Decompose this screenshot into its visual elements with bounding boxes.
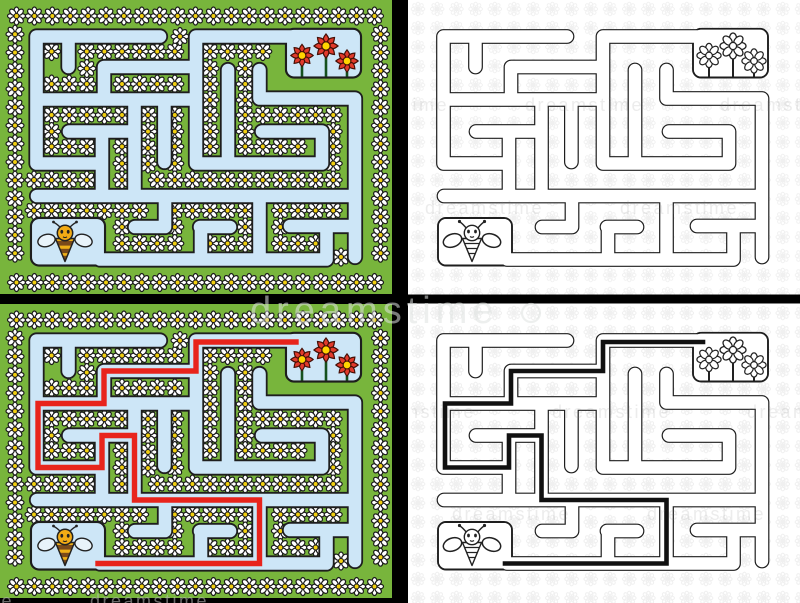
svg-text:dreamstime: dreamstime xyxy=(0,591,14,603)
svg-text:dreamstime: dreamstime xyxy=(720,95,800,115)
svg-text:dreamstime: dreamstime xyxy=(425,198,544,218)
svg-text:dreamstime: dreamstime xyxy=(250,290,499,332)
svg-text:dreamstime: dreamstime xyxy=(90,591,209,603)
svg-text:dreamstime: dreamstime xyxy=(647,504,766,524)
svg-text:dreamstime: dreamstime xyxy=(620,198,739,218)
svg-text:dreamstime: dreamstime xyxy=(452,504,571,524)
svg-text:dreamstime: dreamstime xyxy=(552,402,671,422)
svg-text:dreamstime: dreamstime xyxy=(525,95,644,115)
svg-text:dreamstime: dreamstime xyxy=(747,402,800,422)
